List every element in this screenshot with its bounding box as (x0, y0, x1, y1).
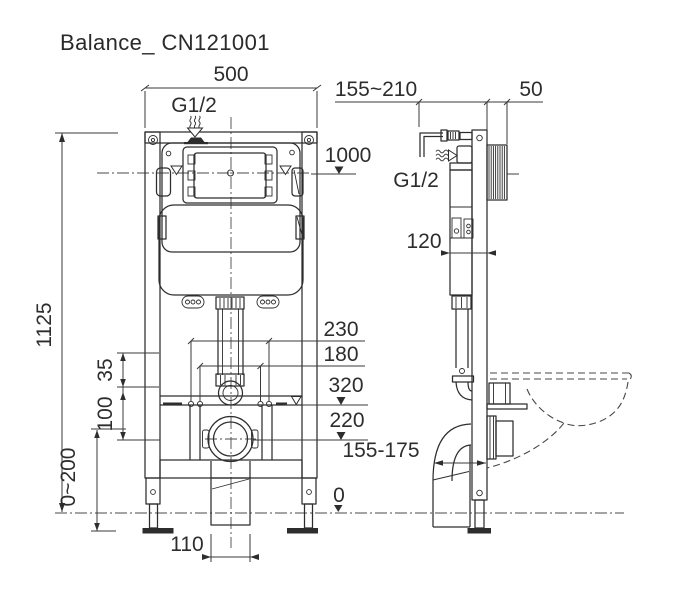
dim-panel-level: 1000 (325, 144, 372, 167)
outlet-connector (487, 416, 513, 459)
dim-total-height: 1125 (33, 302, 56, 347)
flush-pipe (216, 297, 244, 405)
foot-plate (468, 528, 492, 534)
dim-outlet-range: 155-175 (342, 439, 419, 462)
dim-floor-level: 0 (333, 484, 345, 507)
level-marker-icon (337, 397, 346, 405)
marker-triangle-icon (292, 397, 302, 405)
water-flow-icon (190, 116, 191, 128)
water-flow-icon (436, 154, 448, 157)
level-marker-icon (334, 505, 343, 512)
dim-plate-depth: 50 (519, 78, 542, 101)
flow-direction-icon (449, 150, 458, 161)
label-inlet-thread-side: G1/2 (393, 169, 439, 192)
wall-anchor-plate (487, 145, 519, 200)
water-flow-icon (436, 150, 448, 153)
dim-width: 500 (213, 63, 248, 86)
water-flow-icon (194, 116, 195, 128)
rail-hole (477, 490, 483, 496)
dim-bolt-span-inner: 180 (323, 343, 358, 366)
front-dimensions: 500 G1/2 1000 1125 230 180 320 (33, 63, 371, 562)
label-inlet-thread: G1/2 (171, 94, 217, 117)
flush-bend-flange (219, 381, 243, 405)
drain-elbow (433, 424, 471, 527)
water-inlet-symbol (184, 116, 208, 144)
inlet-fitting-icon (188, 138, 205, 143)
water-flow-icon (199, 116, 200, 128)
side-clip (157, 168, 171, 196)
foot-plate (287, 528, 318, 534)
threaded-stud (163, 403, 182, 406)
cistern-side-profile (450, 170, 473, 295)
dim-duct-width: 110 (170, 533, 203, 556)
support-shelf (487, 404, 527, 409)
dim-flush-level: 320 (328, 374, 363, 397)
foot-plate (143, 528, 174, 534)
water-supply-pipe (420, 130, 472, 157)
water-inlet-symbol-side (436, 150, 457, 161)
dim-tank-depth: 120 (406, 230, 441, 253)
dim-leg-range: 0~200 (57, 448, 80, 507)
water-flow-icon (436, 158, 448, 161)
rail-hole (477, 135, 483, 141)
installation-diagram: 500 G1/2 1000 1125 230 180 320 (0, 0, 674, 600)
leg-pin-hole (307, 490, 312, 495)
level-marker-icon (335, 167, 344, 175)
front-view (143, 116, 319, 534)
dim-bracket-gap: 35 (94, 358, 117, 381)
flush-pipe-side (452, 296, 474, 400)
leg-pin-hole (151, 490, 156, 495)
dim-depth-range: 155~210 (335, 78, 417, 101)
side-clip (292, 168, 303, 196)
dim-bracket-height: 100 (94, 396, 117, 431)
flush-plate-frame (166, 147, 294, 203)
bolt-hole (188, 401, 193, 406)
dim-bolt-span-outer: 230 (323, 318, 358, 341)
dim-outlet-level: 220 (329, 409, 364, 432)
flush-bend-horn (487, 383, 527, 409)
technical-drawing-page: Balance_ CN121001 (0, 0, 674, 600)
drain-duct (211, 461, 250, 525)
bolt-hole (266, 401, 271, 406)
side-view (420, 130, 631, 534)
